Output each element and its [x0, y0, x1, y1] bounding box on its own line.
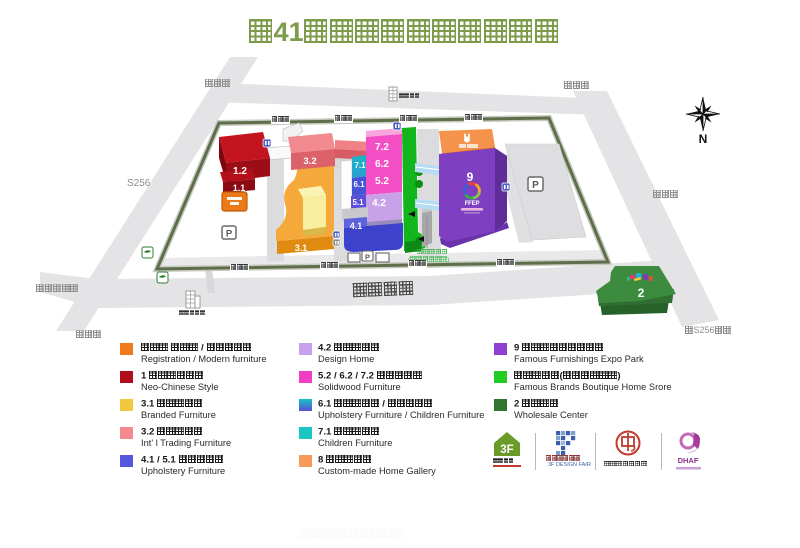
svg-text:7.2: 7.2 — [375, 142, 389, 153]
svg-text:3.1: 3.1 — [295, 243, 308, 253]
svg-text:S256: S256 — [127, 178, 151, 189]
svg-text:9: 9 — [467, 170, 474, 184]
svg-text:3F: 3F — [500, 444, 513, 456]
svg-text:3.2: 3.2 — [303, 156, 316, 167]
svg-text:1.2: 1.2 — [233, 166, 247, 177]
svg-text:P: P — [226, 229, 233, 240]
svg-text:6.1: 6.1 — [353, 180, 365, 189]
svg-text:DHAF: DHAF — [678, 456, 699, 465]
svg-text:7.1: 7.1 — [354, 161, 366, 170]
svg-text:6.2: 6.2 — [375, 159, 389, 170]
svg-text:P: P — [365, 253, 370, 262]
svg-text:4.1: 4.1 — [350, 221, 363, 231]
svg-text:5.2: 5.2 — [375, 176, 389, 187]
svg-text:FFEP: FFEP — [465, 201, 480, 207]
svg-text:4.2: 4.2 — [372, 198, 386, 209]
svg-text:2: 2 — [638, 286, 645, 300]
svg-text:N: N — [699, 132, 708, 146]
svg-text:5.1: 5.1 — [352, 198, 364, 207]
svg-text:1.1: 1.1 — [233, 183, 246, 193]
svg-text:P: P — [532, 180, 539, 191]
